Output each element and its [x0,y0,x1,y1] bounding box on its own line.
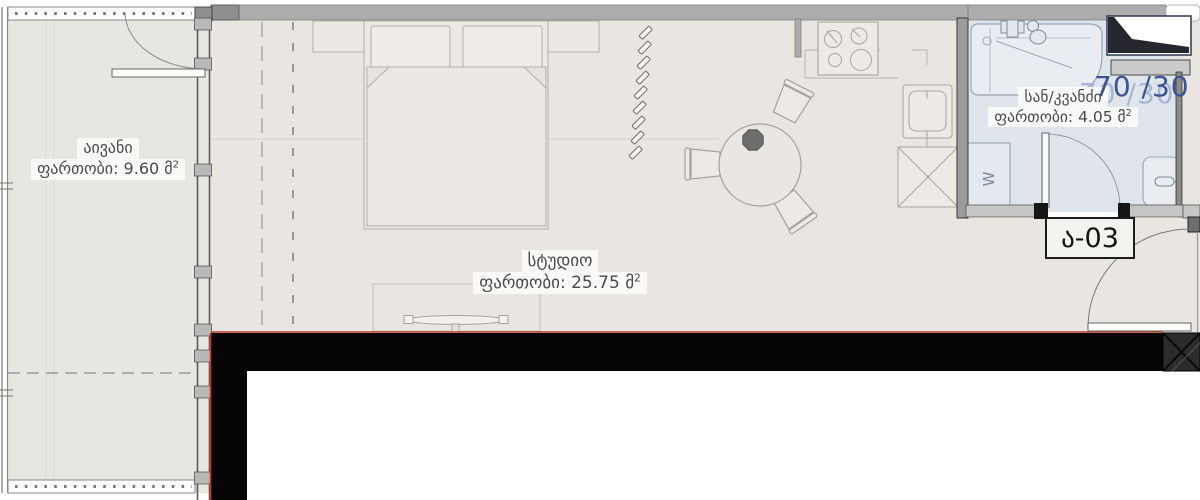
room-name: სტუდიო [522,250,599,272]
kitchen-stub-wall [795,19,801,57]
scale-badge: 70 /30 [1094,70,1190,103]
railing-top [8,7,195,20]
chair [685,148,720,180]
kitchen-sink [903,85,952,147]
shaft-block [1107,16,1191,75]
balcony-floor [8,7,212,493]
appliance-space [898,147,958,207]
table-vase [743,130,763,150]
structural-walls [211,332,1200,500]
blanket [367,67,546,226]
hatched-column [1163,333,1200,371]
room-label-studio: სტუდიო ფართობი: 25.75 მ2 [415,250,705,294]
unit-number: ა-03 [1061,223,1119,254]
room-area: ფართობი: 9.60 მ2 [31,159,185,180]
washer-label: W [980,171,998,186]
room-name: აივანი [77,138,138,159]
room-area: ფართობი: 4.05 მ2 [988,107,1137,127]
bathroom-sink [1143,157,1181,206]
room-label-balcony: აივანი ფართობი: 9.60 მ2 [8,138,208,180]
pillow-left [371,26,450,67]
room-area: ფართობი: 25.75 მ2 [473,272,647,294]
railing-bottom [8,480,195,493]
unit-number-box: ა-03 [1045,217,1135,259]
nightstand-left [313,21,364,52]
stove [818,22,878,75]
pillow-right [463,26,542,67]
nightstand-right [548,21,599,52]
floor-plan: W [0,0,1200,500]
door-jamb [1188,217,1200,232]
